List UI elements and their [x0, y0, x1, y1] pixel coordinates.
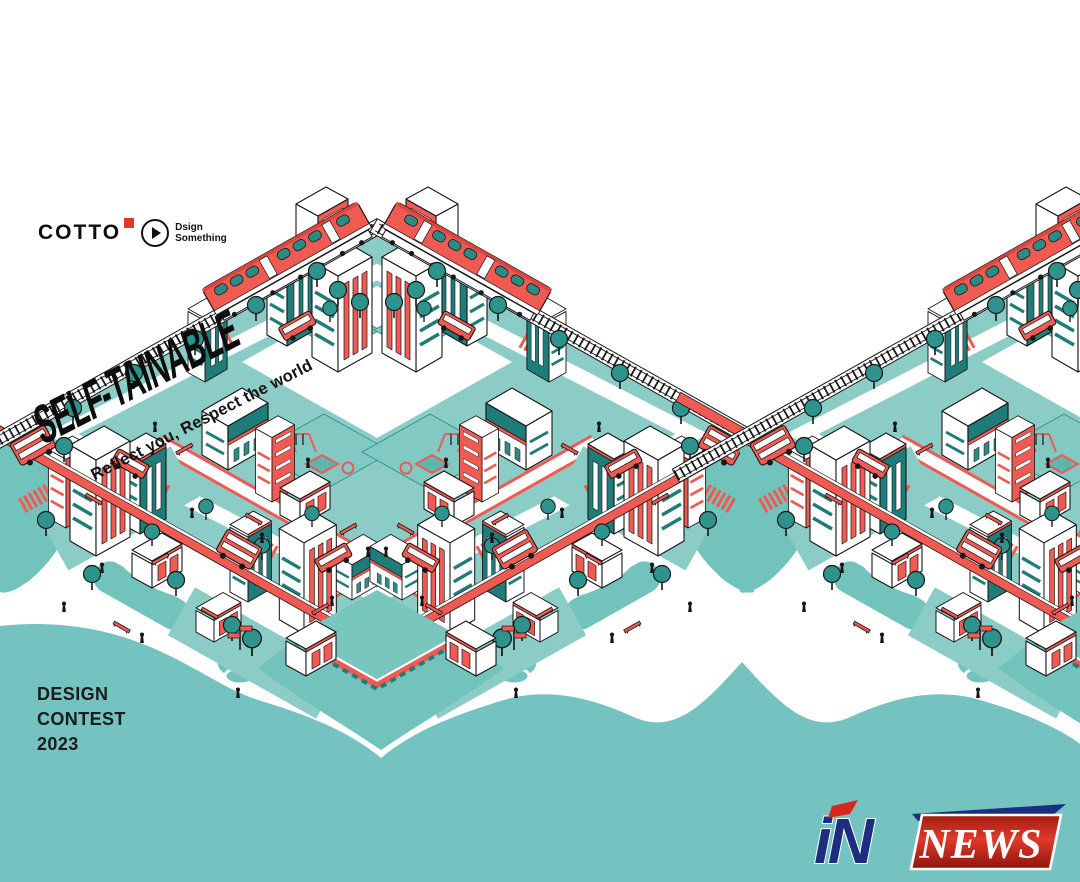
contest-line-2: CONTEST: [37, 707, 126, 732]
innews-prefix: iN: [814, 805, 876, 877]
innews-logo: iN NEWS: [812, 798, 1076, 878]
cotto-label: COTTO: [38, 221, 121, 244]
cotto-logo: COTTO: [38, 222, 121, 243]
cotto-red-square-icon: [124, 218, 134, 228]
brand-row: COTTO Dsign Something: [38, 222, 227, 247]
dsign-something-label: Dsign Something: [175, 222, 227, 245]
poster: COTTO Dsign Something SELF-TAINABLE Refl…: [0, 0, 1080, 882]
dsign-something-logo: Dsign Something: [141, 219, 227, 247]
contest-block: DESIGN CONTEST 2023: [37, 682, 126, 757]
contest-line-1: DESIGN: [37, 682, 126, 707]
contest-line-3: 2023: [37, 732, 126, 757]
innews-word: NEWS: [918, 822, 1042, 868]
play-icon: [141, 219, 169, 247]
